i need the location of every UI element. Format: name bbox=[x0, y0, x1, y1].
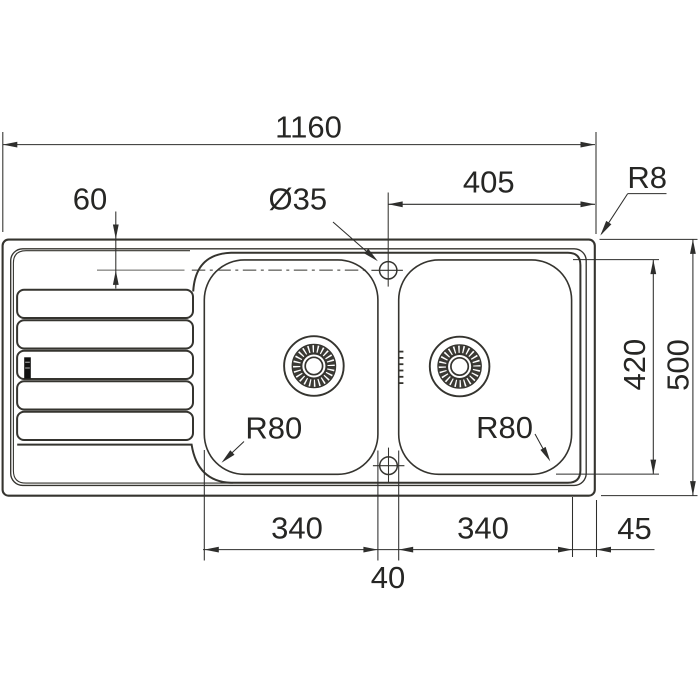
svg-text:1160: 1160 bbox=[275, 109, 342, 144]
svg-text:60: 60 bbox=[73, 181, 107, 216]
svg-text:405: 405 bbox=[463, 164, 515, 199]
svg-text:420: 420 bbox=[617, 339, 652, 391]
svg-text:R80: R80 bbox=[245, 411, 302, 446]
svg-text:500: 500 bbox=[661, 339, 696, 391]
svg-text:R8: R8 bbox=[627, 160, 667, 195]
svg-text:45: 45 bbox=[617, 511, 651, 546]
svg-text:R80: R80 bbox=[476, 410, 533, 445]
svg-text:340: 340 bbox=[457, 510, 509, 545]
svg-text:Ø35: Ø35 bbox=[268, 182, 327, 217]
svg-text:40: 40 bbox=[371, 560, 405, 595]
svg-text:340: 340 bbox=[271, 510, 323, 545]
